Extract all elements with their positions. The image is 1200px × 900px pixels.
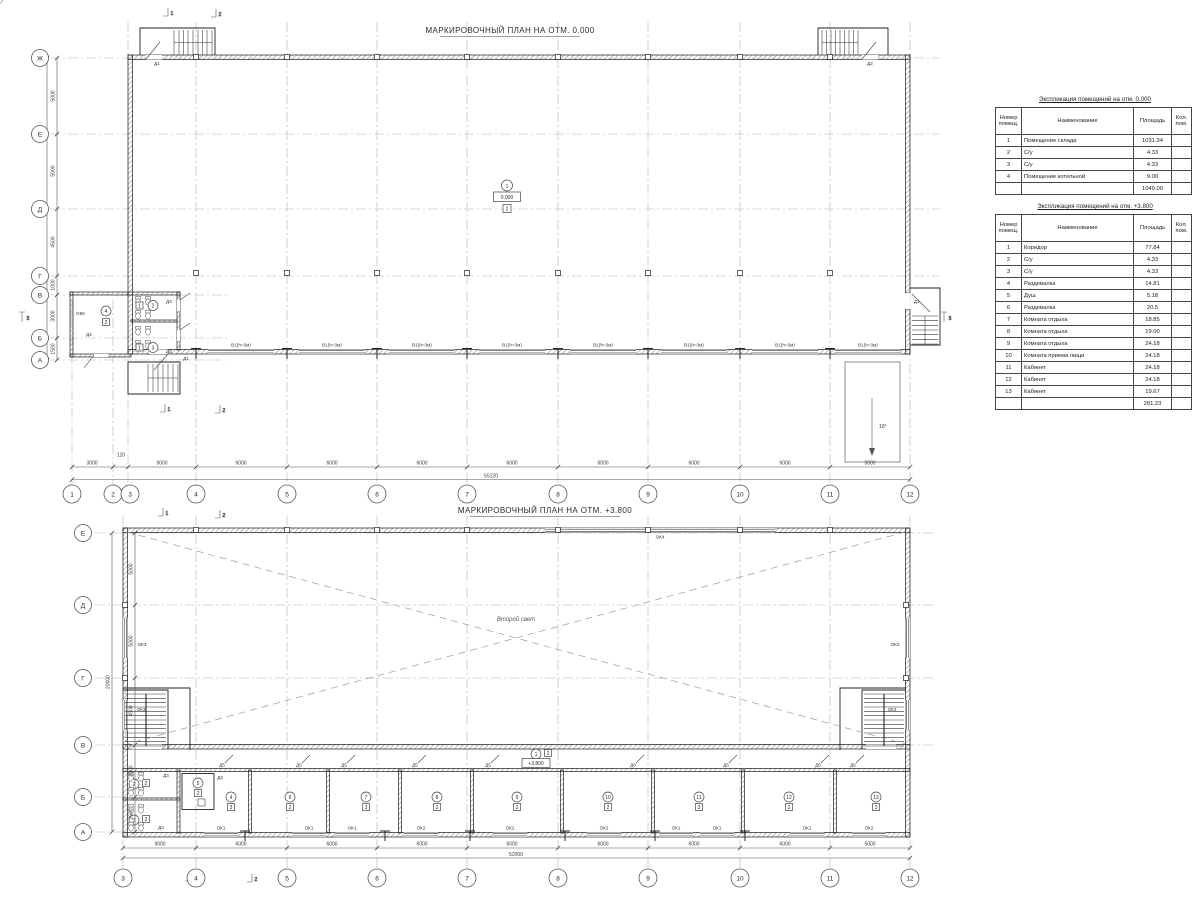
cell-count [1172, 314, 1192, 326]
cell-count [1172, 278, 1192, 290]
cell-count [1172, 242, 1192, 254]
window-label: ОК1 [672, 826, 681, 831]
dim-label: 5000 [51, 165, 57, 176]
floor-type: 2 [516, 805, 519, 811]
drawing-sheet: МАРКИРОВОЧНЫЙ ПЛАН НА ОТМ. 0.000 [0, 0, 1200, 900]
window-label: ОК3 [138, 642, 147, 647]
window-strip-label: В1(h=3м) [775, 343, 795, 348]
floor-type: 2 [436, 805, 439, 811]
cell-area: 14.81 [1134, 278, 1172, 290]
cell-count [1172, 386, 1192, 398]
dim-label: 9000 [154, 842, 165, 848]
axis-label: Е [38, 131, 43, 138]
floor-type: 2 [145, 781, 148, 787]
table-row: 10Комната приема пищи24.18 [996, 350, 1192, 362]
window-label: ОК2 [865, 826, 874, 831]
table-row: 3С/у4.33 [996, 159, 1192, 171]
cell-name: С/у [1022, 254, 1134, 266]
dim-label: 5000 [51, 90, 57, 101]
cell-num [996, 398, 1022, 410]
dim-label: 5000 [864, 461, 875, 467]
cell-name: С/у [1022, 159, 1134, 171]
room-number: 13 [873, 795, 879, 801]
door-label: Д1 [914, 299, 920, 304]
dim-label: 4500 [51, 236, 57, 247]
room-number: 8 [436, 795, 439, 801]
section-mark: 2 [223, 513, 226, 519]
cell-num: 2 [996, 254, 1022, 266]
dim-label: 6000 [506, 461, 517, 467]
floor-type: 3 [230, 805, 233, 811]
cell-num: 1 [996, 135, 1022, 147]
dim-label: 3000 [129, 765, 135, 776]
cell-count [1172, 183, 1192, 195]
window-label: ОК1 [713, 826, 722, 831]
explication-table: Номер помещ. Наименование Площадь Кол. п… [995, 214, 1192, 410]
plan2-walls [123, 528, 910, 837]
table-row: 3С/у4.33 [996, 266, 1192, 278]
plan2-corridor-tag: 1 2 +3.800 [522, 749, 552, 768]
section-mark: 2 [255, 877, 258, 883]
dim-label: 6000 [235, 461, 246, 467]
ramp-arrow [869, 448, 875, 456]
door-label: Д6 [723, 763, 729, 768]
dim-label: 2500 [129, 808, 135, 819]
dim-label: 6000 [416, 461, 427, 467]
cell-count [1172, 338, 1192, 350]
cell-name: Помещение котельной [1022, 171, 1134, 183]
dim-label: 6000 [779, 842, 790, 848]
cell-area: 20.5 [1134, 302, 1172, 314]
cell-name: Кабинет [1022, 362, 1134, 374]
door-label: Д2 [867, 61, 873, 66]
window-strip-label: В1(h=3м) [412, 343, 432, 348]
table-row: 1Помещение склада1031.34 [996, 135, 1192, 147]
table-row: 6Раздевалка20.5 [996, 302, 1192, 314]
dim-label: 6000 [326, 461, 337, 467]
axis-label: 12 [906, 491, 914, 498]
plan2-title: МАРКИРОВОЧНЫЙ ПЛАН НА ОТМ. +3.800 [458, 506, 632, 515]
axis-label: 11 [827, 875, 834, 882]
dim-label: 4500 [129, 705, 135, 716]
explication-table-1: Экспликация помещений на отм. +3.800 Ном… [995, 203, 1195, 410]
axis-label: 7 [465, 491, 469, 498]
table-row: 4Раздевалка14.81 [996, 278, 1192, 290]
cell-num: 8 [996, 326, 1022, 338]
dim-label: 5000 [129, 635, 135, 646]
window-strip-label: В1(h=3м) [858, 343, 878, 348]
table-row: 5Душ5.18 [996, 290, 1192, 302]
cell-name: Кабинет [1022, 374, 1134, 386]
cell-name [1022, 183, 1134, 195]
cell-num: 2 [996, 147, 1022, 159]
cell-area: 5.18 [1134, 290, 1172, 302]
cell-area: 18.85 [1134, 314, 1172, 326]
axis-label: 6 [375, 491, 379, 498]
door-label: Д1 [183, 356, 189, 361]
cell-area: 4.33 [1134, 254, 1172, 266]
axis-label: 9 [646, 875, 650, 882]
section-mark: 1 [168, 407, 171, 413]
floor-type: 2 [197, 791, 200, 797]
cell-area: 24.18 [1134, 374, 1172, 386]
axis-label: 7 [465, 875, 469, 882]
cell-area: 4.33 [1134, 159, 1172, 171]
floor-type: 2 [607, 805, 610, 811]
cell-num: 7 [996, 314, 1022, 326]
room-number: 2 [152, 304, 155, 310]
cell-num: 3 [996, 266, 1022, 278]
col-header-count: Кол. пом. [1172, 215, 1192, 242]
table-row: 1Коридор77.84 [996, 242, 1192, 254]
plan1-grid [50, 22, 940, 487]
door-label: Д5 [412, 763, 418, 768]
window-label: ОК2 [600, 826, 609, 831]
window-label: ОК1 [217, 826, 226, 831]
cell-area: 1031.34 [1134, 135, 1172, 147]
cell-num: 9 [996, 338, 1022, 350]
cell-area: 77.84 [1134, 242, 1172, 254]
plan2-section-marks: 1 2 1 2 [158, 508, 258, 883]
cell-num [996, 183, 1022, 195]
axis-label: Г [81, 675, 85, 682]
plan1-stairs [128, 28, 940, 394]
door-label: Д5 [296, 763, 302, 768]
window-strip-label: В1(h=3м) [684, 343, 704, 348]
cell-name [1022, 398, 1134, 410]
col-header-area: Площадь [1134, 108, 1172, 135]
axis-label: 12 [906, 875, 914, 882]
room-number: 5 [197, 781, 200, 787]
dim-label: 6000 [235, 842, 246, 848]
cell-total-area: 1049.00 [1134, 183, 1172, 195]
col-header-name: Наименование [1022, 108, 1134, 135]
table-row: 12Кабинет24.18 [996, 374, 1192, 386]
table-title: Экспликация помещений на отм. +3.800 [995, 203, 1195, 210]
axis-label: 2 [111, 491, 115, 498]
table-row: 8Комната отдыха19.00 [996, 326, 1192, 338]
floor-type: 3 [365, 805, 368, 811]
plan1-room-tags: 1 0.000 2 ОК5 4 2 Д4 1 2 Д3 1 3 Д3 [76, 180, 521, 354]
cell-name: Помещение склада [1022, 135, 1134, 147]
cell-num: 11 [996, 362, 1022, 374]
axis-label: 11 [827, 491, 834, 498]
dim-label: 6000 [326, 842, 337, 848]
cell-num: 13 [996, 386, 1022, 398]
room-number: 4 [105, 309, 108, 315]
door-label: Д3 [163, 773, 169, 778]
section-mark: 1 [171, 11, 174, 17]
door-label: Д3 [166, 349, 172, 354]
explication-table-0: Экспликация помещений на отм. 0.000 Номе… [995, 96, 1195, 195]
room-number: 1 [506, 184, 509, 190]
axis-label: 4 [194, 875, 198, 882]
axis-label: 9 [646, 491, 650, 498]
table-row: 11Кабинет24.18 [996, 362, 1192, 374]
plan1: МАРКИРОВОЧНЫЙ ПЛАН НА ОТМ. 0.000 [0, 0, 952, 503]
axis-label: Д [81, 602, 86, 609]
axis-label: 1 [70, 491, 74, 498]
door-label: Д6 [815, 763, 821, 768]
table-row: 9Комната отдыха24.18 [996, 338, 1192, 350]
table-row: 2С/у4.33 [996, 147, 1192, 159]
cell-count [1172, 326, 1192, 338]
window-label: ОК3 [888, 707, 897, 712]
cell-name: Комната отдыха [1022, 314, 1134, 326]
plan1-title: МАРКИРОВОЧНЫЙ ПЛАН НА ОТМ. 0.000 [425, 26, 594, 35]
dim-label: 120 [117, 453, 126, 459]
floor-type: 2 [289, 805, 292, 811]
axis-label: 3 [128, 491, 132, 498]
plan1-columns [191, 55, 835, 360]
window-label: ОК1 [348, 826, 357, 831]
door-label: Д3 [217, 775, 223, 780]
axis-label: Б [81, 794, 85, 801]
plan1-window-strip-labels: В1(h=3м) В1(h=3м) В1(h=3м) В1(h=3м) В1(h… [231, 343, 878, 348]
explication-table: Номер помещ. Наименование Площадь Кол. п… [995, 107, 1192, 195]
cell-count [1172, 159, 1192, 171]
dim-label: 1000 [51, 279, 57, 290]
cell-num: 4 [996, 278, 1022, 290]
cell-name: Душ [1022, 290, 1134, 302]
dim-total: 55120 [484, 474, 498, 480]
room-number: 10 [605, 795, 611, 801]
cell-area: 24.18 [1134, 350, 1172, 362]
window-label: ОК2 [417, 826, 426, 831]
dim-label: 1500 [51, 343, 57, 354]
dim-label: 6000 [688, 461, 699, 467]
floor-type: 3 [875, 805, 878, 811]
dim-total: 52000 [509, 852, 523, 858]
section-mark: 3 [27, 316, 30, 322]
col-header-count: Кол. пом. [1172, 108, 1192, 135]
table-row: 7Комната отдыха18.85 [996, 314, 1192, 326]
table-title: Экспликация помещений на отм. 0.000 [995, 96, 1195, 103]
door-label: Д3 [158, 825, 164, 830]
axis-label: Г [38, 273, 42, 280]
table-row: 13Кабинет19.67 [996, 386, 1192, 398]
plan1-door-labels: Д1 Д2 Д1 Д1 [154, 61, 920, 361]
cell-num: 3 [996, 159, 1022, 171]
dim-total: 20000 [106, 675, 112, 689]
door-label: Д4 [86, 332, 92, 337]
axis-label: 3 [121, 875, 125, 882]
axis-label: 10 [736, 875, 744, 882]
window-strip-label: В1(h=3м) [231, 343, 251, 348]
floor-type: 2 [547, 751, 550, 757]
dim-label: 6000 [688, 842, 699, 848]
window-label: ОК1 [803, 826, 812, 831]
cell-count [1172, 350, 1192, 362]
plan2-room-tags: 2 2 3 2 4 3 5 2 6 2 7 3 8 2 9 2 10 2 11 … [129, 778, 881, 825]
cell-count [1172, 374, 1192, 386]
window-label: ОК3 [137, 707, 146, 712]
floor-type: 1 [138, 304, 141, 310]
room-number: 4 [230, 795, 233, 801]
dim-label: 5000 [864, 842, 875, 848]
room-number: 11 [696, 795, 701, 801]
cell-area: 24.18 [1134, 362, 1172, 374]
window-label: ОК4 [656, 535, 665, 540]
table-row: 4Помещение котельной9.00 [996, 171, 1192, 183]
cell-name: Раздевалка [1022, 302, 1134, 314]
section-mark: 2 [219, 12, 222, 18]
cell-count [1172, 171, 1192, 183]
cell-name: Комната приема пищи [1022, 350, 1134, 362]
cell-name: Кабинет [1022, 386, 1134, 398]
section-mark: 3 [949, 316, 952, 322]
axis-label: 8 [556, 491, 560, 498]
room-number: 7 [365, 795, 368, 801]
door-label: Д6 [630, 763, 636, 768]
table-header-row: Номер помещ. Наименование Площадь Кол. п… [996, 215, 1192, 242]
plan1-ramp: 10° [845, 362, 900, 462]
plan1-dimensions: 3000 120 9000 6000 6000 6000 6000 6000 6… [41, 56, 913, 482]
second-light-label: Второй свет [497, 616, 535, 623]
axis-label: А [38, 357, 43, 364]
room-number: 3 [152, 346, 155, 352]
room-number: 6 [289, 795, 292, 801]
axis-label: А [81, 829, 86, 836]
cell-count [1172, 147, 1192, 159]
window-strip-label: В1(h=3м) [502, 343, 522, 348]
window-strip-label: В1(h=3м) [322, 343, 342, 348]
cell-count [1172, 302, 1192, 314]
cell-area: 24.18 [1134, 338, 1172, 350]
cell-name: С/у [1022, 266, 1134, 278]
dim-label: 3000 [51, 310, 57, 321]
floor-type: 3 [698, 805, 701, 811]
cell-num: 12 [996, 374, 1022, 386]
cell-count [1172, 362, 1192, 374]
window-strip-label: В1(h=3м) [593, 343, 613, 348]
room-number: 12 [786, 795, 792, 801]
col-header-name: Наименование [1022, 215, 1134, 242]
dim-label: 6000 [779, 461, 790, 467]
cell-num: 4 [996, 171, 1022, 183]
window-label: ОК5 [76, 311, 85, 316]
cell-name: Коридор [1022, 242, 1134, 254]
door-label: Д3 [166, 299, 172, 304]
floor-type: 2 [105, 320, 108, 326]
col-header-area: Площадь [1134, 215, 1172, 242]
axis-label: В [38, 292, 42, 299]
dim-label: 5000 [129, 563, 135, 574]
axis-label: 5 [285, 875, 289, 882]
dim-label: 3000 [86, 461, 97, 467]
cell-name: С/у [1022, 147, 1134, 159]
cell-name: Комната отдыха [1022, 326, 1134, 338]
cell-num: 6 [996, 302, 1022, 314]
window-label: ОК2 [506, 826, 515, 831]
axis-label: 10 [736, 491, 744, 498]
plan2: МАРКИРОВОЧНЫЙ ПЛАН НА ОТМ. +3.800 [75, 506, 936, 887]
door-label: Д5 [485, 763, 491, 768]
table-row: 2С/у4.33 [996, 254, 1192, 266]
cell-num: 1 [996, 242, 1022, 254]
section-mark: 2 [223, 408, 226, 414]
axis-label: Е [81, 530, 86, 537]
dim-label: 6000 [597, 842, 608, 848]
cell-area: 4.33 [1134, 266, 1172, 278]
cell-area: 9.00 [1134, 171, 1172, 183]
plan2-second-light: Второй свет [127, 532, 905, 744]
col-header-num: Номер помещ. [996, 215, 1022, 242]
axis-label: 8 [556, 875, 560, 882]
level-mark: 0.000 [501, 195, 514, 201]
cell-total-area: 281.23 [1134, 398, 1172, 410]
axis-label: Ж [37, 55, 43, 62]
dim-label: 6000 [597, 461, 608, 467]
level-mark: +3.800 [528, 761, 544, 767]
floor-type: 1 [138, 346, 141, 352]
axis-label: 6 [375, 875, 379, 882]
door-label: Д5 [341, 763, 347, 768]
cell-area: 19.00 [1134, 326, 1172, 338]
table-header-row: Номер помещ. Наименование Площадь Кол. п… [996, 108, 1192, 135]
cell-count [1172, 135, 1192, 147]
room-number: 1 [535, 752, 538, 758]
table-total-row: 1049.00 [996, 183, 1192, 195]
cell-count [1172, 254, 1192, 266]
axis-label: Б [38, 335, 42, 342]
axis-label: Д [38, 206, 43, 213]
cell-num: 5 [996, 290, 1022, 302]
door-label: Д6 [850, 763, 856, 768]
door-label: Д1 [154, 61, 160, 66]
cell-count [1172, 266, 1192, 278]
col-header-num: Номер помещ. [996, 108, 1022, 135]
cell-num: 10 [996, 350, 1022, 362]
cell-area: 19.67 [1134, 386, 1172, 398]
floor-type: 2 [145, 817, 148, 823]
ramp-slope-label: 10° [879, 424, 887, 430]
plan2-stairs [123, 688, 906, 750]
axis-label: В [81, 742, 85, 749]
axis-label: 5 [285, 491, 289, 498]
window-label: ОК1 [305, 826, 314, 831]
section-mark: 1 [166, 511, 169, 517]
room-number: 9 [516, 795, 519, 801]
door-label: Д5 [219, 763, 225, 768]
dim-label: 6000 [506, 842, 517, 848]
table-total-row: 281.23 [996, 398, 1192, 410]
cell-name: Раздевалка [1022, 278, 1134, 290]
window-label: ОК3 [891, 642, 900, 647]
dim-label: 6000 [416, 842, 427, 848]
floor-type: 2 [506, 207, 509, 213]
cell-name: Комната отдыха [1022, 338, 1134, 350]
cell-count [1172, 398, 1192, 410]
cell-count [1172, 290, 1192, 302]
plan2-grid [95, 516, 935, 868]
dim-label: 9000 [156, 461, 167, 467]
floor-type: 2 [788, 805, 791, 811]
cell-area: 4.33 [1134, 147, 1172, 159]
axis-label: 4 [194, 491, 198, 498]
plan1-walls [70, 55, 930, 370]
plan2-door-labels: Д5 Д5 Д5 Д5 Д5 Д6 Д6 Д6 Д6 Д3 Д3 Д3 [158, 755, 864, 830]
